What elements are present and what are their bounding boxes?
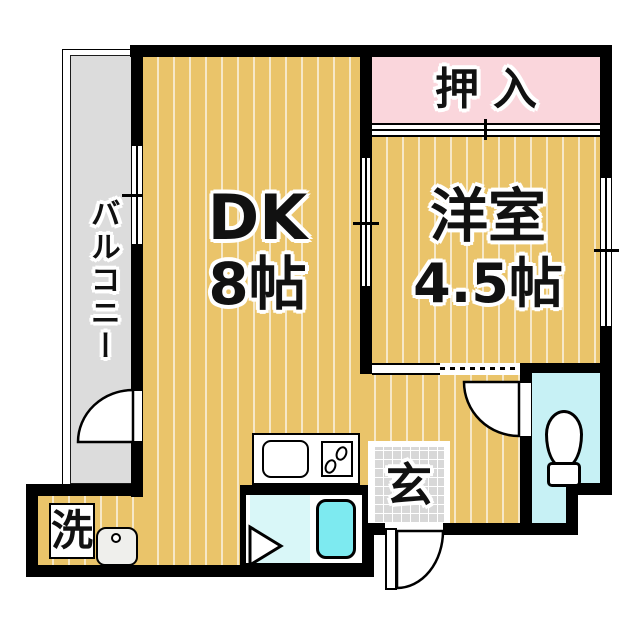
wall-left-outer bbox=[26, 484, 38, 577]
toilet-room-floor-arm bbox=[532, 483, 566, 523]
dk-size-label: 8帖 bbox=[150, 252, 365, 318]
western-room-label: 洋室 bbox=[380, 186, 596, 248]
entrance-door-leaf bbox=[385, 528, 397, 590]
right-window-frame bbox=[605, 178, 607, 326]
wall-bottom-left bbox=[26, 565, 374, 577]
closet-door-tick bbox=[484, 119, 487, 140]
closet-label: 押入 bbox=[372, 62, 600, 118]
dk-hall-dashed-opening bbox=[440, 367, 520, 370]
toilet-icon bbox=[545, 410, 583, 468]
entrance-door-swing-icon bbox=[397, 531, 443, 588]
wash-basin-drain-icon bbox=[111, 533, 121, 543]
entrance-label: 玄 bbox=[374, 447, 444, 523]
balcony-label: バルコニー bbox=[70, 160, 133, 400]
floor-plan: バルコニー DK 8帖 押入 洋室 4.5帖 玄 洗 bbox=[0, 0, 640, 640]
kitchen-sink-icon bbox=[262, 440, 309, 478]
wall-laundry-top bbox=[26, 484, 143, 496]
right-window-tick bbox=[594, 249, 619, 252]
toilet-tank-icon bbox=[547, 462, 581, 487]
dk-hall-sliding-door bbox=[372, 363, 440, 375]
toilet-door-opening bbox=[519, 382, 532, 437]
bathtub-icon bbox=[316, 499, 356, 559]
dk-label: DK bbox=[150, 186, 365, 250]
western-room-size-label: 4.5帖 bbox=[380, 252, 596, 316]
laundry-label: 洗 bbox=[49, 503, 95, 559]
bathroom-floor bbox=[250, 495, 310, 563]
